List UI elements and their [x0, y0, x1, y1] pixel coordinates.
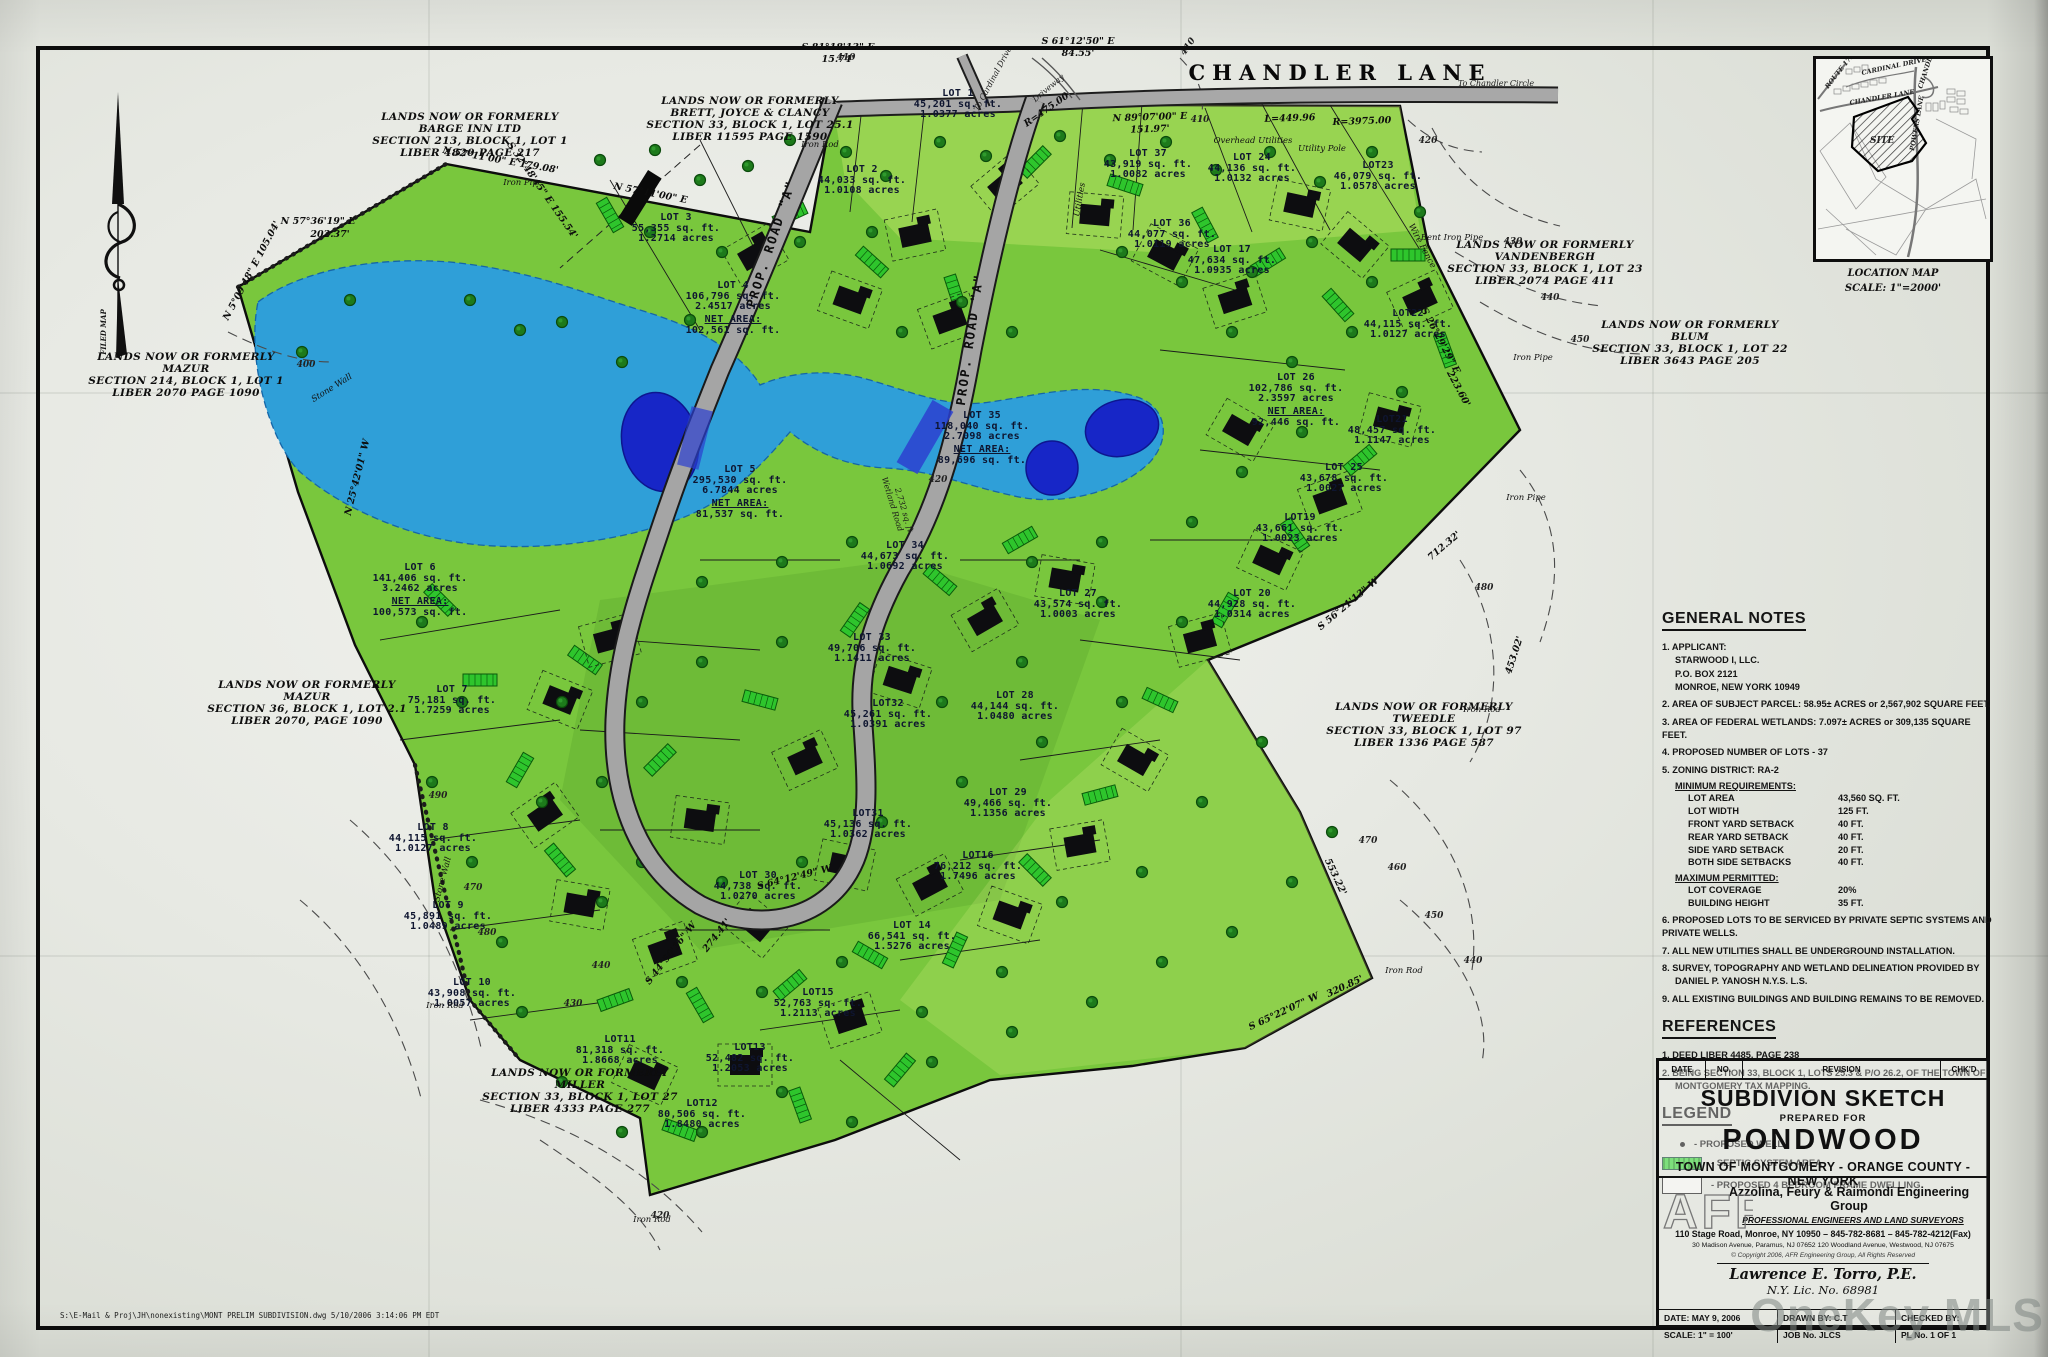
svg-text:1.0692 acres: 1.0692 acres — [867, 561, 943, 572]
svg-text:430: 430 — [564, 999, 584, 1009]
svg-text:430: 430 — [1504, 237, 1524, 247]
svg-text:LOT 6: LOT 6 — [404, 562, 436, 573]
svg-text:SECTION 214, BLOCK 1, LOT 1: SECTION 214, BLOCK 1, LOT 1 — [88, 375, 284, 387]
svg-text:NET AREA:: NET AREA: — [712, 498, 769, 509]
note-line: MONROE, NEW YORK 10949 — [1662, 681, 1992, 694]
cad-file-path: S:\E-Mail & Proj\JH\nonexisting\MONT PRE… — [60, 1311, 439, 1320]
svg-text:SECTION 33, BLOCK 1, LOT 97: SECTION 33, BLOCK 1, LOT 97 — [1326, 725, 1522, 737]
svg-text:LANDS NOW OR FORMERLY: LANDS NOW OR FORMERLY — [96, 351, 276, 363]
adjoiner-label: LANDS NOW OR FORMERLYBLUMSECTION 33, BLO… — [1592, 319, 1788, 367]
svg-text:1.0314 acres: 1.0314 acres — [1214, 609, 1290, 620]
svg-text:LOT19: LOT19 — [1284, 512, 1316, 523]
svg-text:SECTION 213, BLOCK 1, LOT 1: SECTION 213, BLOCK 1, LOT 1 — [372, 135, 568, 147]
svg-text:AFR: AFR — [1663, 1186, 1753, 1239]
svg-text:1.0377 acres: 1.0377 acres — [920, 109, 996, 120]
svg-text:89,696 sq. ft.: 89,696 sq. ft. — [938, 455, 1027, 466]
svg-text:LOT 25: LOT 25 — [1325, 462, 1363, 473]
general-notes-header: GENERAL NOTES — [1662, 610, 1806, 631]
svg-text:LOT21: LOT21 — [1376, 414, 1408, 425]
rev-no-header: NO. — [1706, 1061, 1743, 1078]
svg-text:LOT15: LOT15 — [802, 987, 834, 998]
svg-text:81,537 sq. ft.: 81,537 sq. ft. — [696, 509, 785, 520]
note-line: 1. APPLICANT: — [1662, 641, 1992, 654]
location-map-caption: LOCATION MAP SCALE: 1"=2000' — [1788, 266, 1998, 296]
svg-text:1.7496 acres: 1.7496 acres — [940, 871, 1016, 882]
svg-text:1.8668 acres: 1.8668 acres — [582, 1055, 658, 1066]
adjoiner-label: LANDS NOW OR FORMERLYBRETT, JOYCE & CLAN… — [646, 95, 853, 143]
svg-text:Bent Iron Pipe: Bent Iron Pipe — [1420, 233, 1484, 243]
svg-text:LOT 7: LOT 7 — [436, 684, 468, 695]
svg-text:LOT 29: LOT 29 — [989, 787, 1027, 798]
svg-text:LIBER 2070 PAGE 1090: LIBER 2070 PAGE 1090 — [111, 387, 260, 399]
svg-text:712.32': 712.32' — [1426, 529, 1463, 563]
svg-text:LANDS NOW OR FORMERLY: LANDS NOW OR FORMERLY — [380, 111, 560, 123]
svg-text:Iron Rod: Iron Rod — [1462, 705, 1501, 715]
svg-text:BLUM: BLUM — [1670, 331, 1709, 343]
adjoiner-label: LANDS NOW OR FORMERLYMILLERSECTION 33, B… — [482, 1067, 678, 1115]
svg-text:6.7844 acres: 6.7844 acres — [702, 485, 778, 496]
svg-text:MAZUR: MAZUR — [282, 691, 330, 703]
location-map: ROUTE 17K CARDINAL DRIVE CHANDLER LANE C… — [1813, 56, 1993, 262]
road-label-chandler-circle: To Chandler Circle — [1458, 79, 1535, 88]
prepared-for: PREPARED FOR — [1659, 1113, 1987, 1124]
note-line: 3. AREA OF FEDERAL WETLANDS: 7.097± ACRE… — [1662, 716, 1992, 743]
svg-text:LOT 10: LOT 10 — [453, 977, 491, 988]
svg-text:LOT 28: LOT 28 — [996, 690, 1034, 701]
svg-text:Iron Pipe: Iron Pipe — [502, 178, 543, 188]
svg-text:LANDS NOW OR FORMERLY: LANDS NOW OR FORMERLY — [217, 679, 397, 691]
svg-text:Utility Pole: Utility Pole — [1298, 144, 1346, 154]
svg-text:R=3975.00: R=3975.00 — [1331, 115, 1392, 128]
svg-text:LOT13: LOT13 — [734, 1042, 766, 1053]
note-line: 4. PROPOSED NUMBER OF LOTS - 37 — [1662, 746, 1992, 759]
filed-map-label: FILED MAP — [99, 309, 108, 356]
svg-text:1.0391 acres: 1.0391 acres — [850, 719, 926, 730]
svg-text:MILLER: MILLER — [554, 1079, 605, 1091]
svg-text:1.0127 acres: 1.0127 acres — [395, 843, 471, 854]
svg-text:SECTION 33, BLOCK 1, LOT 23: SECTION 33, BLOCK 1, LOT 23 — [1447, 263, 1643, 275]
svg-text:1.0119 acres: 1.0119 acres — [1134, 239, 1210, 250]
req-row: BOTH SIDE SETBACKS40 FT. — [1688, 856, 1992, 869]
svg-text:102,561 sq. ft.: 102,561 sq. ft. — [686, 325, 781, 336]
min-requirements-header: MINIMUM REQUIREMENTS: — [1675, 781, 1992, 791]
svg-text:NET AREA:: NET AREA: — [705, 314, 762, 325]
note-line: 7. ALL NEW UTILITIES SHALL BE UNDERGROUN… — [1662, 945, 1992, 958]
svg-text:LOT 20: LOT 20 — [1233, 588, 1271, 599]
svg-text:SECTION 33, BLOCK 1, LOT 27: SECTION 33, BLOCK 1, LOT 27 — [482, 1091, 678, 1103]
svg-text:3.2462 acres: 3.2462 acres — [382, 583, 458, 594]
svg-text:LOT 34: LOT 34 — [886, 540, 924, 551]
note-line: P.O. BOX 2121 — [1662, 668, 1992, 681]
svg-text:1.0003 acres: 1.0003 acres — [1040, 609, 1116, 620]
req-row: BUILDING HEIGHT35 FT. — [1688, 897, 1992, 910]
note-line: DANIEL P. YANOSH N.Y.S. L.S. — [1662, 975, 1992, 988]
svg-text:SECTION 33, BLOCK 1, LOT 22: SECTION 33, BLOCK 1, LOT 22 — [1592, 343, 1788, 355]
svg-text:LOT 1: LOT 1 — [942, 88, 974, 99]
svg-text:LIBER 4333 PAGE 277: LIBER 4333 PAGE 277 — [509, 1103, 650, 1115]
svg-text:LOT 35: LOT 35 — [963, 410, 1001, 421]
svg-text:LOT 24: LOT 24 — [1233, 152, 1271, 163]
sheet-title: SUBDIVION SKETCH — [1659, 1085, 1987, 1112]
svg-text:LOT12: LOT12 — [686, 1098, 718, 1109]
firm-copyright: © Copyright 2006, AFR Engineering Group,… — [1659, 1252, 1987, 1259]
svg-text:Overhead Utilities: Overhead Utilities — [1214, 136, 1293, 146]
svg-text:1.0108 acres: 1.0108 acres — [824, 185, 900, 196]
svg-text:SECTION 33, BLOCK 1, LOT 25.1: SECTION 33, BLOCK 1, LOT 25.1 — [646, 119, 853, 131]
svg-text:2.7098 acres: 2.7098 acres — [944, 431, 1020, 442]
svg-text:LIBER 1336 PAGE 587: LIBER 1336 PAGE 587 — [1353, 737, 1494, 749]
svg-text:1.1356 acres: 1.1356 acres — [970, 808, 1046, 819]
svg-text:LANDS NOW OR FORMERLY: LANDS NOW OR FORMERLY — [660, 95, 840, 107]
req-row: REAR YARD SETBACK40 FT. — [1688, 831, 1992, 844]
rev-date-header: DATE — [1659, 1061, 1706, 1078]
svg-text:LANDS NOW OR FORMERLY: LANDS NOW OR FORMERLY — [490, 1067, 670, 1079]
note-line: 6. PROPOSED LOTS TO BE SERVICED BY PRIVA… — [1662, 914, 1992, 941]
svg-text:LOT16: LOT16 — [962, 850, 994, 861]
svg-text:1.0023 acres: 1.0023 acres — [1262, 533, 1338, 544]
svg-text:Iron Rod: Iron Rod — [1384, 966, 1423, 976]
svg-text:SECTION 36, BLOCK 1, LOT 2.1: SECTION 36, BLOCK 1, LOT 2.1 — [207, 703, 407, 715]
references-header: REFERENCES — [1662, 1018, 1776, 1039]
svg-text:NET AREA:: NET AREA: — [392, 596, 449, 607]
req-row: LOT COVERAGE20% — [1688, 884, 1992, 897]
svg-text:1.0027 acres: 1.0027 acres — [1306, 483, 1382, 494]
svg-text:1.0362 acres: 1.0362 acres — [830, 829, 906, 840]
req-row: SIDE YARD SETBACK20 FT. — [1688, 844, 1992, 857]
north-arrow: FILED MAP — [99, 92, 134, 358]
svg-text:S 61°12'50" E: S 61°12'50" E — [1042, 36, 1116, 47]
svg-text:Iron Rod: Iron Rod — [425, 1001, 464, 1011]
svg-text:S 81°18'13" E: S 81°18'13" E — [802, 42, 876, 53]
road-label-chandler: CHANDLER LANE — [1188, 60, 1491, 85]
svg-text:151.97': 151.97' — [1130, 123, 1170, 135]
svg-text:453.02': 453.02' — [1503, 635, 1526, 676]
svg-text:LOT11: LOT11 — [604, 1034, 636, 1045]
svg-text:1.0578 acres: 1.0578 acres — [1340, 181, 1416, 192]
svg-text:LOT 36: LOT 36 — [1153, 218, 1191, 229]
svg-text:LANDS NOW OR FORMERLY: LANDS NOW OR FORMERLY — [1600, 319, 1780, 331]
svg-text:1.2113 acres: 1.2113 acres — [780, 1008, 856, 1019]
rev-revision-header: REVISION — [1743, 1061, 1941, 1078]
svg-text:N 57°36'19" E: N 57°36'19" E — [280, 216, 357, 227]
svg-text:440: 440 — [1541, 293, 1561, 303]
svg-text:480: 480 — [1475, 583, 1495, 593]
svg-text:400: 400 — [297, 360, 317, 370]
location-map-scale: SCALE: 1"=2000' — [1788, 281, 1998, 296]
onekey-mls-watermark: OneKey MLS — [1750, 1288, 2044, 1342]
max-permitted-header: MAXIMUM PERMITTED: — [1675, 873, 1992, 883]
note-line: 8. SURVEY, TOPOGRAPHY AND WETLAND DELINE… — [1662, 962, 1992, 975]
svg-text:LOT23: LOT23 — [1362, 160, 1394, 171]
svg-text:LOT32: LOT32 — [872, 698, 904, 709]
svg-text:LOT31: LOT31 — [852, 808, 884, 819]
note-line: 2. AREA OF SUBJECT PARCEL: 58.95± ACRES … — [1662, 698, 1992, 711]
req-row: LOT WIDTH125 FT. — [1688, 805, 1992, 818]
adjoiner-label: LANDS NOW OR FORMERLYVANDENBERGHSECTION … — [1447, 239, 1643, 287]
svg-text:480: 480 — [478, 928, 498, 938]
svg-text:1.0082 acres: 1.0082 acres — [1110, 169, 1186, 180]
engineer-name: Lawrence E. Torro, P.E. — [1659, 1266, 1987, 1283]
svg-text:1.0132 acres: 1.0132 acres — [1214, 173, 1290, 184]
svg-text:NET AREA:: NET AREA: — [954, 444, 1011, 455]
svg-text:NET AREA:: NET AREA: — [1268, 406, 1325, 417]
svg-text:1.1411 acres: 1.1411 acres — [834, 653, 910, 664]
svg-text:410: 410 — [1179, 36, 1198, 58]
svg-text:450: 450 — [1425, 911, 1445, 921]
svg-text:470: 470 — [464, 883, 484, 893]
svg-text:BARGE INN LTD: BARGE INN LTD — [418, 123, 522, 135]
scanned-subdivision-plat: { "paper": { "watermark": "OneKey MLS", … — [0, 0, 2048, 1357]
req-row: FRONT YARD SETBACK40 FT. — [1688, 818, 1992, 831]
svg-text:LOT 17: LOT 17 — [1213, 244, 1251, 255]
pond — [1026, 441, 1078, 495]
svg-text:84.55': 84.55' — [1062, 48, 1095, 59]
svg-text:LOT 5: LOT 5 — [724, 464, 756, 475]
svg-text:LOT 4: LOT 4 — [717, 280, 749, 291]
svg-text:460: 460 — [1388, 863, 1408, 873]
svg-text:1.2053 acres: 1.2053 acres — [712, 1063, 788, 1074]
svg-text:420: 420 — [1419, 136, 1439, 146]
svg-text:LIBER 2074 PAGE 411: LIBER 2074 PAGE 411 — [1474, 275, 1615, 287]
svg-text:L=449.96: L=449.96 — [1263, 112, 1316, 125]
svg-text:1.1147 acres: 1.1147 acres — [1354, 435, 1430, 446]
svg-text:LOT 14: LOT 14 — [893, 920, 931, 931]
svg-text:LOT 37: LOT 37 — [1129, 148, 1167, 159]
svg-text:440: 440 — [1464, 956, 1484, 966]
svg-text:1.0935 acres: 1.0935 acres — [1194, 265, 1270, 276]
location-map-title: LOCATION MAP — [1788, 266, 1998, 281]
svg-text:LOT 27: LOT 27 — [1059, 588, 1097, 599]
svg-text:1.0489 acres: 1.0489 acres — [410, 921, 486, 932]
svg-text:BRETT, JOYCE & CLANCY: BRETT, JOYCE & CLANCY — [669, 107, 830, 119]
locmap-site-label: SITE — [1870, 136, 1894, 146]
svg-text:1.0270 acres: 1.0270 acres — [720, 891, 796, 902]
locmap-route-label: ROUTE 17K — [1823, 59, 1857, 91]
svg-text:490: 490 — [429, 791, 449, 801]
svg-text:LIBER 2070, PAGE 1090: LIBER 2070, PAGE 1090 — [230, 715, 383, 727]
svg-text:LOT 26: LOT 26 — [1277, 372, 1315, 383]
svg-text:MAZUR: MAZUR — [161, 363, 209, 375]
svg-text:LOT 33: LOT 33 — [853, 632, 891, 643]
svg-text:440: 440 — [592, 961, 612, 971]
svg-text:LIBER 3643 PAGE 205: LIBER 3643 PAGE 205 — [1619, 355, 1760, 367]
note-line: 5. ZONING DISTRICT: RA-2 — [1662, 764, 1992, 777]
svg-text:Iron Pipe: Iron Pipe — [1505, 493, 1546, 503]
svg-text:2.3597 acres: 2.3597 acres — [1258, 393, 1334, 404]
rev-chkd-header: CHK'D — [1941, 1061, 1987, 1078]
svg-text:1.5276 acres: 1.5276 acres — [874, 941, 950, 952]
svg-text:2.4517 acres: 2.4517 acres — [695, 301, 771, 312]
svg-text:Iron Rod: Iron Rod — [800, 140, 839, 150]
svg-text:LOT 3: LOT 3 — [660, 212, 692, 223]
svg-text:420: 420 — [651, 1211, 671, 1221]
adjoiner-label: LANDS NOW OR FORMERLYMAZURSECTION 36, BL… — [207, 679, 407, 727]
svg-text:100,573 sq. ft.: 100,573 sq. ft. — [373, 607, 468, 618]
svg-text:420: 420 — [929, 475, 949, 485]
revision-header-row: DATE NO. REVISION CHK'D — [1659, 1061, 1987, 1080]
svg-text:LOT 2: LOT 2 — [846, 164, 878, 175]
svg-text:450: 450 — [1571, 335, 1591, 345]
svg-text:1.7259 acres: 1.7259 acres — [414, 705, 490, 716]
svg-text:92,446 sq. ft.: 92,446 sq. ft. — [1252, 417, 1341, 428]
afr-logo: AFR — [1661, 1182, 1753, 1244]
note-line: 9. ALL EXISTING BUILDINGS AND BUILDING R… — [1662, 993, 1992, 1006]
svg-text:1.2714 acres: 1.2714 acres — [638, 233, 714, 244]
svg-text:470: 470 — [1359, 836, 1379, 846]
svg-text:202.37': 202.37' — [309, 229, 349, 240]
svg-text:410: 410 — [837, 53, 857, 63]
signature-line — [1717, 1263, 1929, 1264]
svg-text:1.8480 acres: 1.8480 acres — [664, 1119, 740, 1130]
svg-text:LOT 8: LOT 8 — [417, 822, 449, 833]
svg-text:1.0480 acres: 1.0480 acres — [977, 711, 1053, 722]
adjoiner-label: LANDS NOW OR FORMERLYMAZURSECTION 214, B… — [88, 351, 284, 399]
svg-text:410: 410 — [1191, 115, 1211, 125]
svg-text:VANDENBERGH: VANDENBERGH — [1495, 251, 1596, 263]
project-name: PONDWOOD — [1659, 1124, 1987, 1157]
note-line: STARWOOD I, LLC. — [1662, 654, 1992, 667]
svg-text:Iron Pipe: Iron Pipe — [1512, 353, 1553, 363]
svg-text:TWEEDLE: TWEEDLE — [1393, 713, 1457, 725]
req-row: LOT AREA43,560 SQ. FT. — [1688, 792, 1992, 805]
